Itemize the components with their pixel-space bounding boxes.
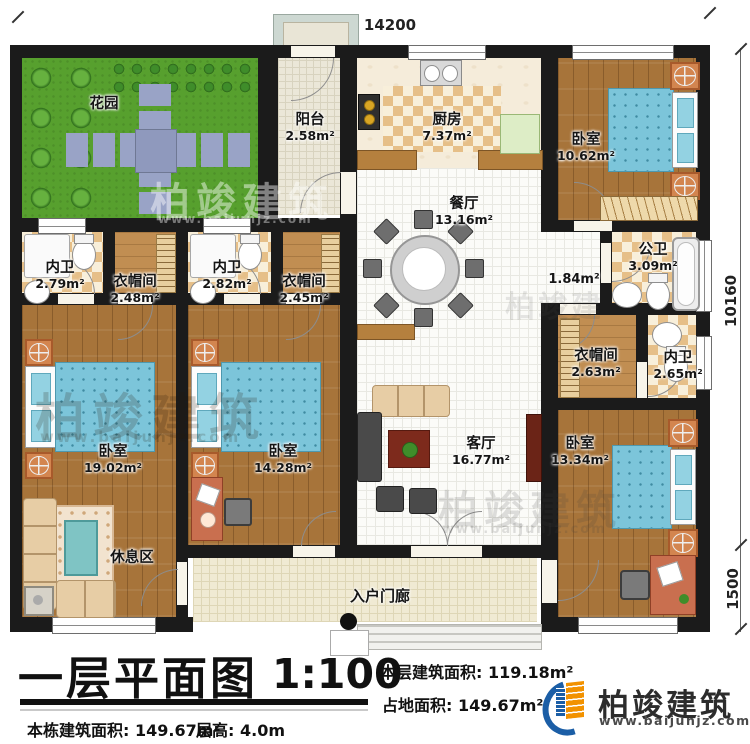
bm-dressing-table — [191, 477, 223, 541]
public-bath-label: 公卫 3.09m² — [628, 242, 677, 274]
living-rug — [388, 430, 430, 468]
company-website: www.baijunjz.com — [599, 713, 750, 728]
toilet-tank — [240, 234, 260, 244]
bed-bottom-mid — [221, 362, 321, 452]
nightstand — [25, 339, 53, 366]
wall-kitchen-bedroom — [541, 45, 558, 232]
living-chair — [409, 488, 437, 514]
kitchen-cutting-board — [500, 114, 540, 154]
title-rule-thin — [20, 709, 368, 711]
bedroom-bl-label: 卧室 19.02m² — [84, 444, 142, 476]
bedroom-tr-label: 卧室 10.62m² — [557, 132, 615, 164]
dimension-tick — [735, 539, 748, 552]
land-area-text: 占地面积: 149.67m² — [382, 692, 543, 716]
toilet-tank — [648, 273, 668, 283]
living-sofa-top — [372, 385, 450, 417]
closet-right-door-gap — [560, 304, 596, 314]
bedroom-bm-door-gap — [293, 546, 335, 557]
bedroom-tr-window — [572, 45, 674, 60]
kitchen-stove — [358, 94, 380, 130]
wall-garden-balcony — [258, 45, 278, 232]
closet-right-label: 衣帽间 2.63m² — [571, 348, 620, 380]
porch-label: 入户门廊 — [350, 588, 410, 606]
floor-height-text: 层高: 4.0m — [196, 717, 285, 741]
title-rule-thick — [20, 699, 368, 705]
dining-chair — [414, 308, 433, 327]
dimension-tick — [735, 43, 748, 56]
public-bath-door-gap — [601, 243, 611, 283]
kitchen-label: 厨房 7.37m² — [422, 112, 471, 144]
balcony-dining-door-gap — [341, 172, 356, 214]
living-chair — [376, 486, 404, 512]
bed-top-right-headboard — [672, 92, 698, 168]
garden-label: 花园 — [90, 96, 119, 113]
bed-bottom-left — [55, 362, 155, 452]
company-logo-icon — [543, 676, 595, 728]
rest-area-coffee-table — [64, 520, 98, 576]
bedroom-br-label: 卧室 13.34m² — [551, 436, 609, 468]
total-area-text: 本栋建筑面积: 149.67m² — [27, 717, 220, 741]
garden-path-center-slab — [135, 129, 177, 173]
nightstand — [670, 62, 700, 90]
bedroom-tr-door-gap — [574, 221, 612, 231]
bedroom-br-window — [578, 617, 678, 634]
balcony-label: 阳台 2.58m² — [285, 112, 334, 144]
dining-label: 餐厅 13.16m² — [435, 196, 493, 228]
bath-suite1-window — [38, 218, 86, 234]
bm-chair-monitor — [224, 498, 252, 526]
sink — [652, 322, 682, 348]
dining-table — [390, 235, 460, 305]
toilet-tank — [74, 234, 94, 244]
dimension-tick — [735, 623, 748, 636]
bed-bl-headboard — [25, 366, 57, 448]
closet-suite2-label: 衣帽间 2.45m² — [279, 274, 328, 306]
nightstand — [25, 452, 53, 479]
nightstand — [191, 339, 219, 366]
wall-bedroomtr-bottom — [541, 220, 710, 232]
nightstand — [191, 452, 219, 479]
sink — [612, 282, 642, 308]
logo-building-orange — [566, 681, 584, 719]
garden-shrub-row — [110, 60, 255, 96]
bed-bm-headboard — [191, 366, 223, 448]
dining-console — [357, 324, 415, 340]
rest-area-label: 休息区 — [110, 550, 154, 567]
kitchen-counter-left — [357, 150, 417, 170]
bath-suite2-label: 内卫 2.82m² — [202, 260, 251, 292]
bedroom-tr-wardrobe — [600, 196, 698, 221]
dimension-right-main: 10160 — [722, 271, 740, 331]
bedroom-bl-door-gap — [177, 562, 187, 605]
dining-chair — [363, 259, 382, 278]
kitchen-window — [408, 45, 486, 60]
bath-suite2-window — [203, 218, 251, 234]
living-armchair-left — [357, 412, 382, 482]
logo-building-blue — [556, 688, 565, 716]
dining-chair — [414, 210, 433, 229]
closet-suite1-label: 衣帽间 2.48m² — [110, 274, 159, 306]
br-dressing-table — [650, 555, 696, 615]
dimension-top: 14200 — [330, 16, 450, 34]
toilet — [646, 280, 670, 310]
bed-top-right — [608, 88, 674, 172]
porch-steps — [357, 624, 542, 650]
bedroom-bm-label: 卧室 14.28m² — [254, 444, 312, 476]
corner-tick-top-left — [12, 11, 25, 24]
living-label: 客厅 16.77m² — [452, 436, 510, 468]
wall-bedroombr-top — [541, 398, 710, 410]
dimension-right-porch: 1500 — [724, 559, 742, 619]
rest-area-sofa-bottom — [56, 580, 116, 618]
bath-suite1-door-gap — [58, 294, 94, 304]
bath-right-label: 内卫 2.65m² — [653, 350, 702, 382]
floor-plan-page: 柏竣建筑 www.baijunjz.com 柏竣建筑 www.baijunjz.… — [0, 0, 750, 744]
kitchen-sink — [420, 60, 462, 86]
bath-right-door-gap — [637, 362, 647, 398]
br-chair-monitor — [620, 570, 650, 600]
bed-bottom-right — [612, 445, 672, 529]
rest-area-side-table — [24, 586, 54, 616]
nightstand — [668, 419, 698, 447]
bath-suite2-door-gap — [224, 294, 260, 304]
dining-chair — [465, 259, 484, 278]
hallway-label: 1.84m² — [548, 272, 599, 287]
nightstand — [668, 529, 698, 557]
living-entry-door-gap — [411, 546, 482, 557]
balcony-entry-door-gap — [291, 46, 335, 57]
corner-tick-top-right — [704, 7, 717, 20]
wall-left — [10, 45, 22, 632]
bedroom-br-door-gap — [542, 560, 557, 603]
wall-bm-dining — [340, 232, 357, 558]
bedroom-bl-window — [52, 617, 156, 634]
tv-cabinet — [526, 414, 542, 482]
bed-br-headboard — [670, 449, 696, 525]
bath-suite1-label: 内卫 2.79m² — [35, 260, 84, 292]
plan-title: 一层平面图 — [18, 642, 258, 707]
porch-column — [340, 613, 357, 630]
